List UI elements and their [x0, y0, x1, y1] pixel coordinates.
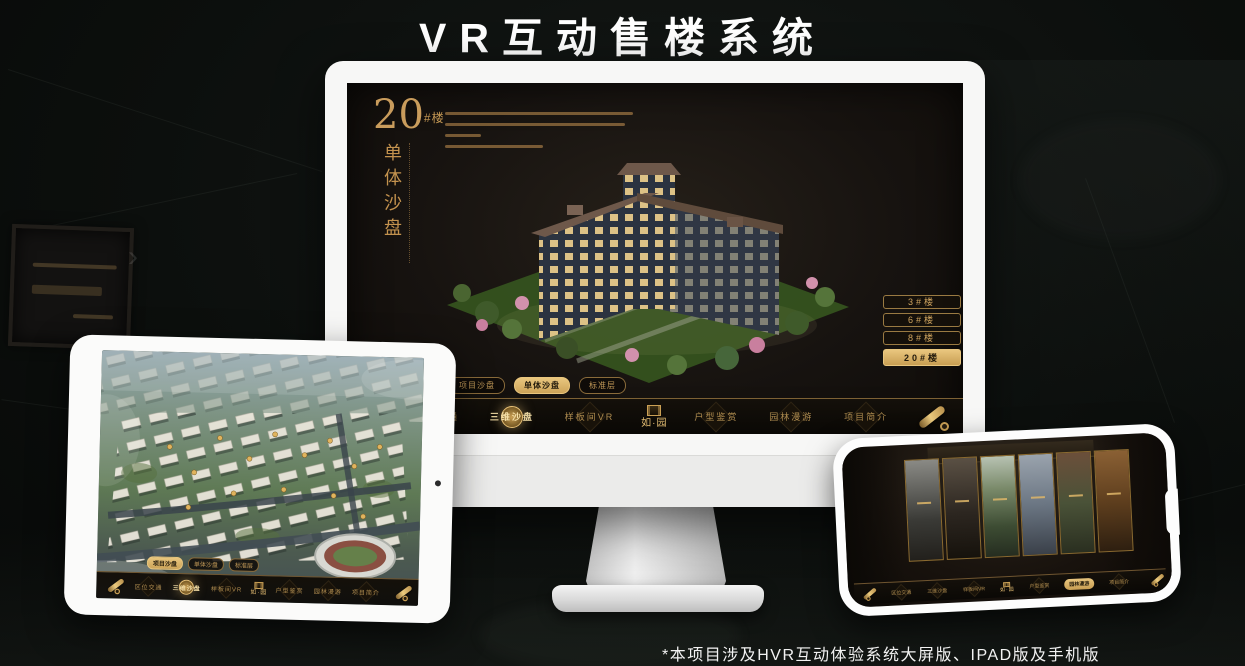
panorama-card-livingroom[interactable]	[942, 456, 982, 560]
nav-item-unit-appreciation[interactable]: 户型鉴赏	[274, 585, 306, 595]
scroll-handle-icon[interactable]	[393, 581, 410, 604]
logo-text: 如·园	[641, 419, 667, 429]
tab-standard-floor[interactable]: 标准层	[579, 377, 626, 394]
brand-logo: 如·园	[250, 582, 267, 596]
layer-tab-group: 项目沙盘 单体沙盘 标准层	[449, 377, 626, 394]
tablet-device: 项目沙盘 单体沙盘 标准层 区位交通 三维沙盘 样板间VR 如·园 户型鉴赏 园…	[64, 334, 457, 623]
scroll-handle-icon[interactable]	[1149, 571, 1160, 589]
nav-item-unit-appreciation[interactable]: 户型鉴赏	[1028, 581, 1050, 589]
phone-shell: 区位交通 三维沙盘 样板间VR 如·园 户型鉴赏 园林漫游 项目简介	[832, 423, 1182, 617]
tablet-layer-tab-group: 项目沙盘 单体沙盘 标准层	[147, 556, 259, 572]
nav-item-3d-sandbox[interactable]: 三维沙盘	[171, 582, 203, 592]
nav-item-location-transport[interactable]: 区位交通	[890, 588, 912, 596]
bg-map-line	[8, 69, 322, 172]
floor-button-group: 3#楼 6#楼 8#楼 20#楼	[883, 295, 961, 366]
nav-item-showroom-vr[interactable]: 样板间VR	[962, 585, 986, 593]
floor-button-8[interactable]: 8#楼	[883, 331, 961, 345]
nav-item-location-transport[interactable]: 区位交通	[132, 581, 164, 591]
scroll-handle-icon[interactable]	[915, 399, 951, 435]
tablet-shell: 项目沙盘 单体沙盘 标准层 区位交通 三维沙盘 样板间VR 如·园 户型鉴赏 园…	[64, 334, 457, 623]
tablet-screen: 项目沙盘 单体沙盘 标准层 区位交通 三维沙盘 样板间VR 如·园 户型鉴赏 园…	[96, 350, 424, 606]
page-title: VR互动售楼系统	[0, 4, 1245, 64]
nav-item-showroom-vr[interactable]: 样板间VR	[209, 583, 245, 593]
logo-text: 如·园	[1000, 587, 1015, 593]
nav-item-garden-roam[interactable]: 园林漫游	[1064, 577, 1095, 589]
promo-canvas: › VR互动售楼系统 20#楼 单体沙盘	[0, 0, 1245, 666]
block-title-vertical: 单体沙盘	[379, 143, 410, 263]
stadium	[315, 533, 396, 579]
phone-screen: 区位交通 三维沙盘 样板间VR 如·园 户型鉴赏 园林漫游 项目简介	[841, 432, 1172, 608]
phone-device: 区位交通 三维沙盘 样板间VR 如·园 户型鉴赏 园林漫游 项目简介	[832, 423, 1182, 617]
building-model-3d[interactable]	[427, 133, 867, 393]
tab-standard-floor[interactable]: 标准层	[229, 558, 259, 572]
nav-item-garden-roam[interactable]: 园林漫游	[765, 410, 817, 423]
tab-project-sandbox[interactable]: 项目沙盘	[449, 377, 505, 394]
panorama-card-shelves[interactable]	[1094, 449, 1134, 553]
nav-item-garden-roam[interactable]: 园林漫游	[312, 586, 344, 596]
footnote-caption: *本项目涉及HVR互动体验系统大屏版、IPAD版及手机版	[662, 641, 1100, 665]
panorama-card-interior[interactable]	[904, 458, 944, 562]
floor-button-6[interactable]: 6#楼	[883, 313, 961, 327]
panorama-card-garden[interactable]	[980, 455, 1020, 559]
tab-single-sandbox[interactable]: 单体沙盘	[514, 377, 570, 394]
monitor-stand-neck	[586, 500, 726, 592]
bg-texture-blob	[1020, 120, 1220, 240]
logo-seal-icon	[647, 405, 661, 416]
block-number: 20	[373, 92, 424, 138]
tablet-camera-icon	[435, 480, 441, 486]
panorama-card-building[interactable]	[1018, 453, 1058, 557]
nav-item-unit-appreciation[interactable]: 户型鉴赏	[690, 410, 742, 423]
tab-single-sandbox[interactable]: 单体沙盘	[188, 557, 224, 571]
floor-button-3[interactable]: 3#楼	[883, 295, 961, 309]
monitor-stand-base	[552, 585, 764, 612]
nav-item-showroom-vr[interactable]: 样板间VR	[561, 410, 619, 423]
scroll-handle-icon[interactable]	[861, 585, 872, 603]
bg-chevron-mark: ›	[128, 240, 138, 274]
scroll-handle-icon[interactable]	[105, 574, 122, 597]
bg-map-line	[43, 173, 298, 228]
nav-item-project-intro[interactable]: 项目简介	[350, 587, 382, 597]
bg-plaque-sign	[8, 224, 134, 350]
brand-logo: 如·园	[1000, 581, 1015, 593]
nav-item-project-intro[interactable]: 项目简介	[1108, 578, 1130, 586]
logo-seal-icon	[254, 582, 263, 589]
phone-notch	[1165, 489, 1180, 536]
aerial-masterplan-view[interactable]	[96, 350, 424, 606]
nav-item-3d-sandbox[interactable]: 三维沙盘	[926, 586, 948, 594]
nav-item-project-intro[interactable]: 项目简介	[840, 410, 892, 423]
brand-logo: 如·园	[641, 405, 667, 429]
logo-text: 如·园	[250, 590, 267, 596]
panorama-card-trees[interactable]	[1056, 451, 1096, 555]
block-unit-label: #楼	[424, 111, 445, 125]
tab-project-sandbox[interactable]: 项目沙盘	[147, 556, 183, 570]
floor-button-20[interactable]: 20#楼	[883, 349, 961, 366]
nav-item-3d-sandbox[interactable]: 三维沙盘	[486, 410, 538, 423]
